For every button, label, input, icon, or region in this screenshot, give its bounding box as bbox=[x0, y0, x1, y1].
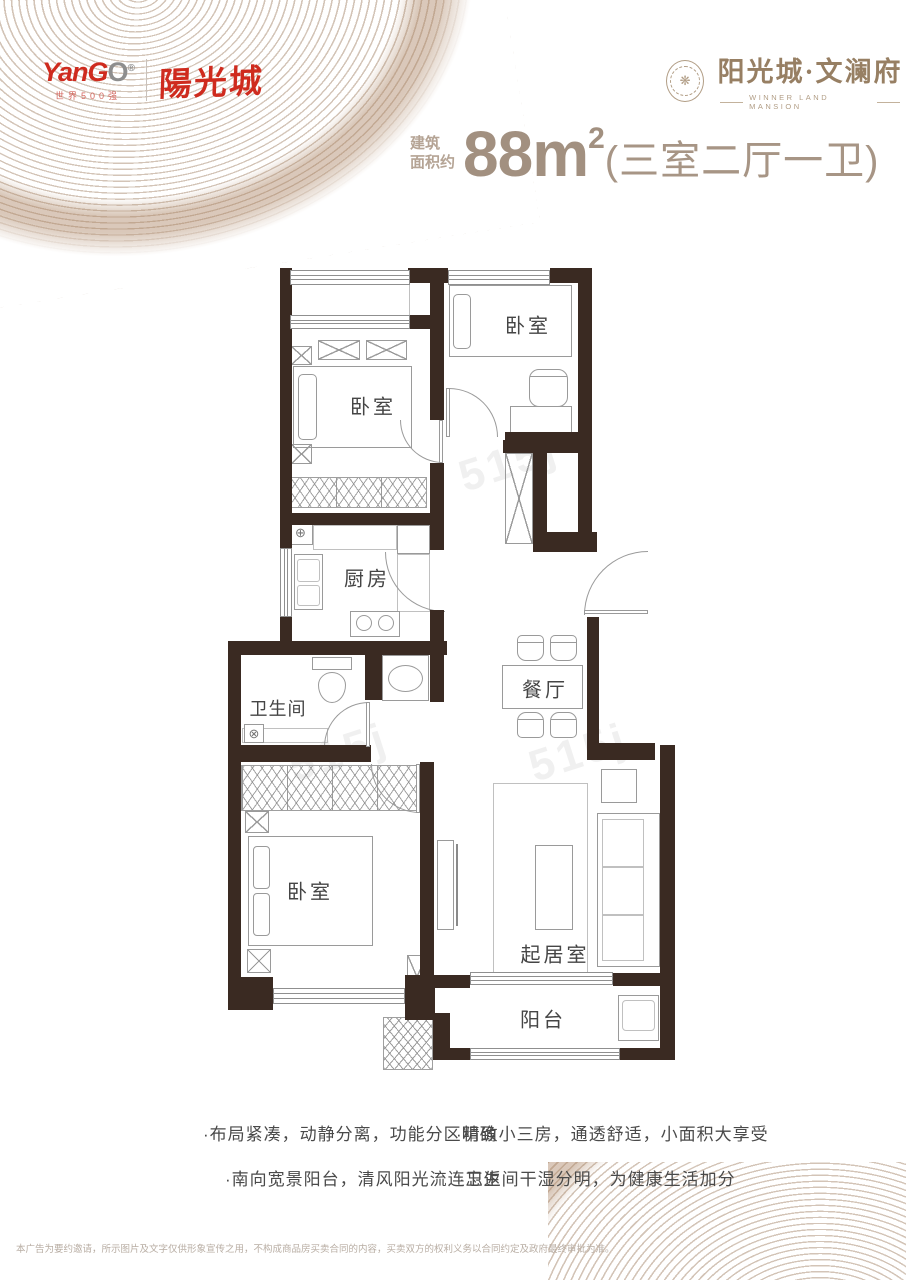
desk-chair bbox=[529, 369, 568, 407]
feature-bullet-1: ·布局紧凑，动静分离，功能分区明确 bbox=[203, 1120, 498, 1145]
nightstand bbox=[291, 346, 312, 365]
wall bbox=[280, 268, 292, 548]
wall bbox=[433, 1013, 450, 1060]
stove-burner bbox=[356, 615, 372, 631]
wall bbox=[420, 762, 434, 975]
cabinet bbox=[318, 340, 360, 360]
area-headline: 建筑 面积约 88m2 (三室二厅一卫) bbox=[410, 124, 879, 185]
yango-wordmark-block: YanGO® 世界500强 bbox=[42, 59, 134, 102]
wall bbox=[365, 650, 382, 700]
area-prefix-line2: 面积约 bbox=[410, 154, 455, 173]
duct-shaft bbox=[505, 453, 533, 544]
room-label-bedroom-bottom: 卧室 bbox=[287, 876, 333, 905]
window bbox=[470, 1048, 620, 1060]
wall bbox=[620, 1048, 675, 1060]
poster-page: YanGO® 世界500强 陽光城 ❋ 阳光城·文澜府 WINNER LAND … bbox=[0, 0, 906, 1280]
nightstand bbox=[247, 949, 271, 973]
project-subtitle: WINNER LAND MANSION bbox=[749, 93, 871, 111]
dining-chair bbox=[550, 635, 577, 661]
wall bbox=[533, 532, 597, 552]
seal-inner-icon: ❋ bbox=[670, 66, 700, 96]
disclaimer-text: 本广告为要约邀请，所示图片及文字仅供形象宣传之用，不构成商品房买卖合同的内容，买… bbox=[16, 1241, 886, 1255]
area-superscript: 2 bbox=[588, 122, 605, 155]
wall bbox=[280, 617, 292, 643]
pillow bbox=[253, 846, 270, 889]
window bbox=[280, 548, 292, 617]
subtitle-dash-right bbox=[877, 102, 900, 103]
tv-screen bbox=[456, 844, 458, 926]
washing-machine-door bbox=[622, 1000, 655, 1031]
door-arc-entry bbox=[584, 551, 648, 615]
seal-icon: ❋ bbox=[666, 60, 704, 102]
door-arc-bedroom-top-right bbox=[449, 388, 498, 437]
room-label-bedroom-top-left: 卧室 bbox=[350, 391, 396, 420]
sink-basin bbox=[297, 585, 320, 606]
wall bbox=[450, 1048, 470, 1060]
wall bbox=[228, 745, 371, 762]
sofa-cushion bbox=[602, 915, 644, 961]
dining-chair bbox=[517, 712, 544, 738]
floorplan: 515j 515j 515j bbox=[228, 258, 690, 1070]
room-layout-text: (三室二厅一卫) bbox=[605, 139, 880, 183]
door-leaf bbox=[584, 610, 648, 614]
kitchen-counter bbox=[313, 525, 397, 550]
wall bbox=[587, 617, 599, 757]
door-arc-bathroom bbox=[324, 702, 369, 747]
area-prefix-line1: 建筑 bbox=[410, 135, 455, 154]
feature-bullet-2: ·精致小三房，通透舒适，小面积大享受 bbox=[456, 1120, 769, 1145]
wenlanfu-text-block: 阳光城·文澜府 WINNER LAND MANSION bbox=[714, 50, 906, 111]
nightstand bbox=[245, 811, 269, 833]
project-subtitle-row: WINNER LAND MANSION bbox=[714, 93, 906, 111]
dining-chair bbox=[517, 635, 544, 661]
window bbox=[290, 315, 410, 329]
door-arc-kitchen bbox=[385, 552, 445, 612]
door-leaf bbox=[446, 388, 450, 437]
area-number: 88 bbox=[463, 118, 532, 190]
subtitle-dash-left bbox=[720, 102, 743, 103]
wall bbox=[660, 745, 675, 1060]
room-label-bedroom-top-right: 卧室 bbox=[505, 310, 551, 339]
sofa-cushion bbox=[602, 867, 644, 915]
logo-divider bbox=[146, 59, 147, 101]
nightstand bbox=[291, 444, 312, 464]
wall bbox=[578, 268, 592, 552]
wordmark-o: O bbox=[108, 57, 128, 87]
fridge bbox=[397, 525, 430, 554]
hatched-area bbox=[383, 1017, 433, 1070]
room-label-living: 起居室 bbox=[521, 939, 590, 968]
yango-chinese-brand: 陽光城 bbox=[158, 54, 265, 106]
door-leaf bbox=[416, 764, 420, 813]
tv-cabinet bbox=[437, 840, 454, 930]
door-leaf bbox=[439, 420, 443, 463]
wall bbox=[587, 743, 655, 760]
pillow bbox=[453, 294, 471, 349]
toilet-tank bbox=[312, 657, 352, 670]
wall bbox=[228, 655, 241, 977]
room-label-kitchen: 厨房 bbox=[344, 563, 390, 592]
wenlanfu-logo: ❋ 阳光城·文澜府 WINNER LAND MANSION bbox=[666, 50, 906, 111]
stove-burner bbox=[378, 615, 394, 631]
wall bbox=[430, 610, 444, 702]
room-label-dining: 餐厅 bbox=[522, 674, 568, 703]
wash-basin bbox=[388, 665, 423, 692]
wordmark-g: G bbox=[88, 57, 108, 87]
wall bbox=[533, 453, 547, 532]
window bbox=[290, 270, 410, 285]
pillow bbox=[253, 893, 270, 936]
door-leaf bbox=[366, 702, 370, 747]
wall bbox=[505, 432, 592, 448]
wardrobe bbox=[290, 477, 427, 508]
yango-tagline: 世界500强 bbox=[55, 89, 121, 102]
area-prefix: 建筑 面积约 bbox=[410, 135, 455, 173]
project-name: 阳光城·文澜府 bbox=[718, 50, 903, 89]
floor-drain-icon: ⊗ bbox=[244, 724, 264, 743]
sink-basin bbox=[297, 559, 320, 582]
room-label-bathroom: 卫生间 bbox=[250, 695, 307, 721]
wall bbox=[228, 977, 273, 1010]
feature-bullet-4: ·卫生间干湿分明，为健康生活加分 bbox=[459, 1165, 736, 1190]
pillow bbox=[298, 374, 317, 440]
window bbox=[448, 270, 550, 285]
wall bbox=[292, 513, 430, 525]
coffee-table bbox=[535, 845, 573, 930]
wall bbox=[228, 641, 447, 655]
wall bbox=[405, 975, 435, 1020]
yango-logo: YanGO® 世界500强 陽光城 bbox=[42, 56, 264, 104]
cabinet bbox=[366, 340, 407, 360]
door-arc-bedroom-top-left bbox=[400, 420, 443, 463]
wall bbox=[430, 463, 444, 550]
window bbox=[273, 988, 405, 1004]
dining-chair bbox=[550, 712, 577, 738]
side-table bbox=[601, 769, 637, 803]
room-label-balcony: 阳台 bbox=[520, 1004, 566, 1033]
wall bbox=[613, 973, 675, 986]
sofa-cushion bbox=[602, 819, 644, 867]
desk bbox=[510, 406, 572, 433]
balcony-slider-window bbox=[470, 972, 613, 985]
wordmark-yan: Yan bbox=[42, 57, 88, 87]
area-value: 88m2 bbox=[463, 124, 605, 185]
wall bbox=[430, 273, 444, 420]
yango-wordmark: YanGO® bbox=[42, 59, 134, 86]
area-unit: m bbox=[532, 118, 588, 190]
wall bbox=[435, 975, 470, 988]
toilet-bowl bbox=[318, 672, 346, 703]
registered-mark: ® bbox=[128, 63, 134, 74]
